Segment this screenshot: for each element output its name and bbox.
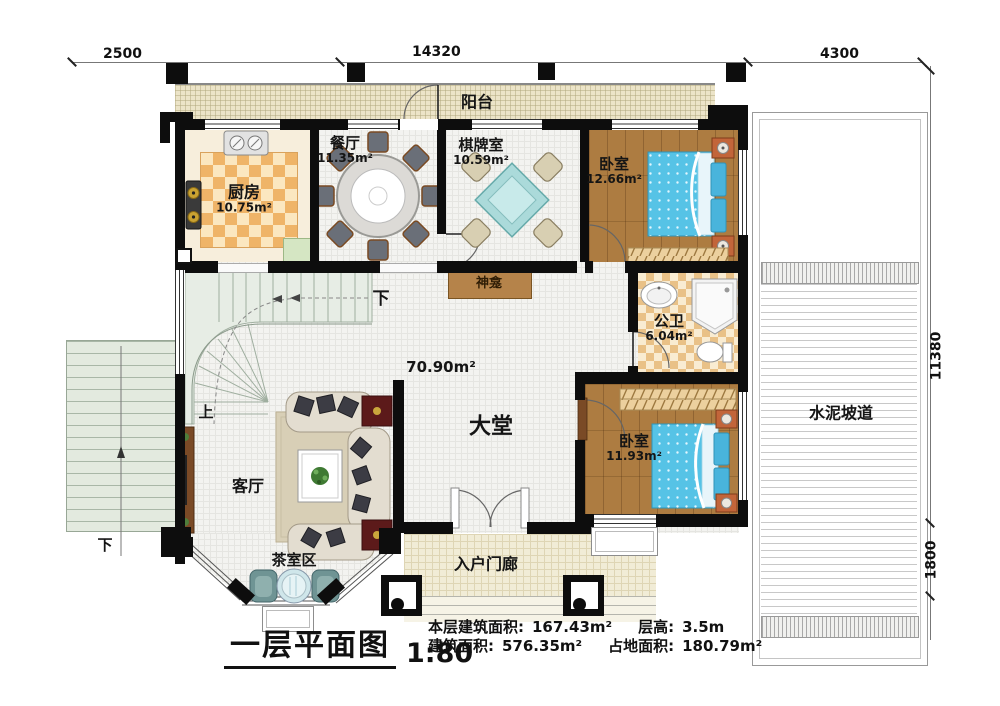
total-area-value: 576.35m²	[502, 637, 582, 656]
dim-top-left: 2500	[103, 46, 142, 62]
dining-window	[348, 119, 398, 130]
room-label-hall: 大堂	[469, 415, 513, 438]
room-label-games: 棋牌室 10.59m²	[453, 138, 509, 166]
room-label-porch: 入户门廊	[454, 557, 518, 574]
door-jamb-box	[176, 248, 192, 264]
bedroom2-window-sill	[591, 527, 658, 556]
total-area-label: 建筑面积:	[428, 637, 494, 656]
bedroom1-bed	[628, 138, 734, 263]
page-title: 一层平面图	[224, 620, 396, 669]
kitchen-stove	[186, 181, 201, 229]
room-label-bedroom2: 卧室 11.93m²	[606, 434, 662, 462]
hall-opening-threshold	[380, 263, 437, 273]
room-label-kitchen: 厨房 10.75m²	[216, 184, 272, 213]
bedroom2-side-window	[738, 392, 748, 500]
stair-side-window	[175, 270, 185, 374]
room-label-bedroom1: 卧室 12.66m²	[586, 157, 642, 185]
dim-line-top	[72, 62, 922, 63]
dim-right-lower: 1800	[923, 541, 939, 580]
balcony-door-gap	[400, 119, 438, 130]
room-label-ramp: 水泥坡道	[809, 406, 873, 423]
bedroom1-side-window	[738, 150, 748, 235]
exterior-stair-down-label: 下	[97, 538, 112, 554]
shrine-label: 神龛	[476, 277, 502, 291]
floor-area-value: 167.43m²	[532, 618, 612, 637]
room-label-tea: 茶室区	[271, 553, 316, 569]
bedroom1-top-window	[612, 119, 698, 130]
plan-overlay	[0, 0, 1000, 706]
footprint-value: 180.79m²	[682, 637, 762, 656]
exterior-stair-arrow	[117, 346, 125, 556]
room-label-dining: 餐厅 11.35m²	[317, 136, 373, 164]
stair-down-label: 下	[373, 291, 390, 309]
room-label-balcony: 阳台	[461, 95, 493, 112]
story-height-value: 3.5m	[682, 618, 724, 637]
kitchen-sink	[224, 131, 268, 155]
floor-plan: 2500 14320 4300 11380 1800 阳台 餐厅 11.35m²…	[0, 0, 1000, 706]
stats-block: 本层建筑面积: 167.43m² 层高: 3.5m 建筑面积: 576.35m²…	[428, 618, 762, 656]
kitchen-door-threshold	[218, 263, 268, 273]
kitchen-window	[205, 119, 280, 130]
dim-top-mid: 14320	[412, 44, 461, 60]
room-label-bath: 公卫 6.04m²	[645, 314, 692, 342]
dim-right-upper: 11380	[928, 332, 944, 381]
games-window	[472, 119, 542, 130]
floor-area-label: 本层建筑面积:	[428, 618, 524, 637]
dim-top-right: 4300	[820, 46, 859, 62]
hall-area-label: 70.90m²	[406, 360, 476, 376]
story-height-label: 层高:	[638, 618, 674, 637]
footprint-label: 占地面积:	[608, 637, 674, 656]
stair-up-label: 上	[198, 405, 213, 421]
bedroom2-bottom-window	[594, 514, 656, 527]
room-label-living: 客厅	[232, 479, 264, 496]
